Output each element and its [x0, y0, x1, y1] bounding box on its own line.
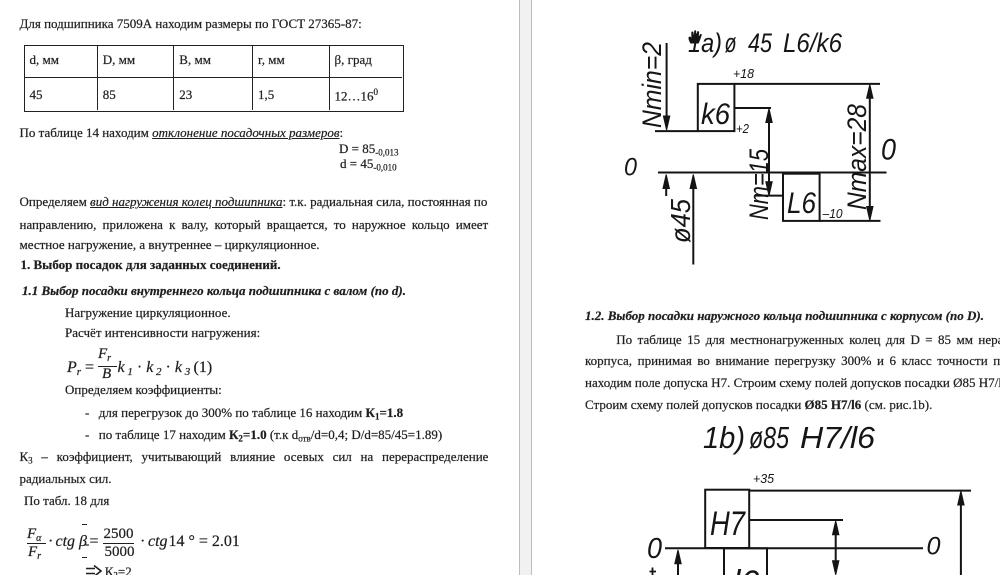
svg-text:1b): 1b) [703, 420, 745, 455]
svg-text:L6/k6: L6/k6 [783, 28, 843, 58]
svg-text:k6: k6 [701, 98, 730, 131]
svg-text:+2: +2 [736, 121, 750, 136]
svg-text:H7/l6: H7/l6 [800, 420, 876, 455]
svg-text:45: 45 [748, 28, 773, 58]
svg-text:ø45: ø45 [665, 199, 696, 243]
svg-text:H7: H7 [710, 505, 746, 543]
svg-text:0: 0 [927, 533, 941, 561]
svg-text:0: 0 [624, 154, 637, 182]
svg-text:–10: –10 [822, 206, 844, 221]
svg-text:l6: l6 [733, 564, 759, 575]
svg-text:+18: +18 [733, 66, 755, 81]
svg-text:Nm=15: Nm=15 [744, 148, 774, 220]
svg-text:L6: L6 [787, 187, 816, 220]
svg-text:+35: +35 [753, 471, 775, 486]
svg-text:ø: ø [725, 28, 737, 58]
svg-text:Nmax=28: Nmax=28 [842, 104, 872, 210]
svg-text:Nmin=2: Nmin=2 [637, 42, 667, 128]
svg-text:ø85: ø85 [749, 420, 790, 455]
svg-text:0: 0 [647, 533, 662, 565]
svg-text:0: 0 [881, 134, 896, 167]
